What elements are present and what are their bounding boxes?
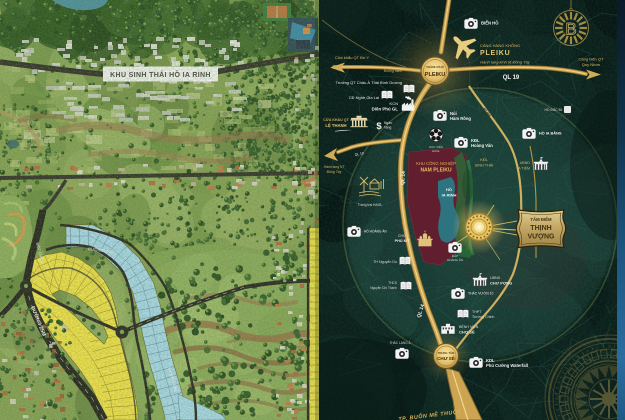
svg-text:KCN: KCN	[390, 101, 399, 106]
svg-text:Quy Nhơn: Quy Nhơn	[582, 62, 600, 67]
svg-text:CHƯ PỢNG: CHƯ PỢNG	[490, 281, 512, 286]
svg-text:SINH THÁI: SINH THÁI	[475, 164, 494, 168]
svg-text:TRUNG TÂM: TRUNG TÂM	[438, 350, 455, 355]
svg-text:UBND: UBND	[490, 276, 501, 280]
svg-text:CHỢ: CHỢ	[398, 234, 406, 238]
svg-text:HỒ HOÀNG ÂN: HỒ HOÀNG ÂN	[364, 229, 387, 234]
svg-text:CHỢ SÊ: CHỢ SÊ	[459, 330, 475, 335]
svg-text:QL 14: QL 14	[400, 171, 407, 185]
svg-text:Trường Chinh: Trường Chinh	[472, 315, 494, 319]
svg-text:hàng: hàng	[384, 126, 392, 130]
svg-text:IA TIÊM: IA TIÊM	[517, 166, 530, 171]
svg-text:HỒ: HỒ	[446, 187, 452, 192]
svg-text:IA RINH: IA RINH	[442, 193, 457, 198]
svg-text:THÀNH PHỐ: THÀNH PHỐ	[426, 64, 444, 69]
svg-text:VƯỢNG: VƯỢNG	[528, 234, 556, 241]
svg-text:BIỂN HỒ: BIỂN HỒ	[481, 21, 499, 26]
svg-text:LỆ THANH: LỆ THANH	[325, 123, 346, 128]
svg-text:TÂM ĐIỂM: TÂM ĐIỂM	[530, 217, 552, 222]
svg-text:CHƯ SÊ: CHƯ SÊ	[437, 354, 455, 361]
svg-text:THPT: THPT	[472, 310, 482, 314]
svg-text:Hoàng Vân: Hoàng Vân	[471, 143, 493, 148]
svg-text:UBND: UBND	[520, 161, 531, 165]
svg-text:PLEIKU: PLEIKU	[480, 50, 510, 57]
svg-text:B: B	[565, 20, 576, 39]
svg-text:QL 19: QL 19	[503, 75, 520, 81]
svg-text:Hàm Rồng: Hàm Rồng	[450, 116, 471, 121]
svg-text:Diên Phú GL: Diên Phú GL	[372, 107, 399, 112]
svg-text:CĐ Nghề Gia Lai: CĐ Nghề Gia Lai	[349, 95, 379, 100]
svg-text:THÁC VƯỜN 10: THÁC VƯỜN 10	[468, 291, 494, 296]
svg-text:NAM PLEIKU: NAM PLEIKU	[420, 168, 452, 174]
svg-text:THÁC LẠNG Á: THÁC LẠNG Á	[389, 341, 411, 345]
svg-text:Cảng biển QT: Cảng biển QT	[579, 57, 604, 62]
svg-text:Ngân: Ngân	[384, 121, 392, 125]
svg-text:CỬA KHẨU QT: CỬA KHẨU QT	[323, 117, 349, 122]
svg-text:Hành lang KT: Hành lang KT	[324, 165, 346, 169]
svg-text:HỒ IA BĂNG: HỒ IA BĂNG	[539, 131, 562, 136]
svg-text:CẢNG HÀNG KHÔNG: CẢNG HÀNG KHÔNG	[480, 43, 520, 48]
svg-text:THỊNH: THỊNH	[530, 225, 551, 232]
svg-text:HAGL: HAGL	[432, 149, 440, 153]
svg-text:$: $	[376, 121, 382, 132]
svg-text:PLEIKU: PLEIKU	[425, 72, 446, 78]
svg-text:HOÀNG ÂN: HOÀNG ÂN	[447, 257, 463, 262]
svg-text:PHÚ MỸ: PHÚ MỸ	[395, 238, 410, 243]
svg-text:Trường QT Châu Á Thái Bình Dươ: Trường QT Châu Á Thái Bình Dương	[336, 80, 402, 85]
svg-text:HỒ ĐẮC ĐI: HỒ ĐẮC ĐI	[544, 107, 562, 112]
svg-text:Phú Cường Waterfall: Phú Cường Waterfall	[486, 363, 528, 368]
svg-text:KHU CÔNG NGHIỆP: KHU CÔNG NGHIỆP	[416, 161, 456, 166]
svg-text:THCS: THCS	[388, 281, 397, 285]
svg-text:Trang trại HAGL: Trang trại HAGL	[358, 203, 383, 207]
svg-text:Cửa khẩu QT Bờ Y: Cửa khẩu QT Bờ Y	[335, 55, 370, 60]
svg-text:Đông Tây: Đông Tây	[327, 170, 342, 174]
svg-text:TH Nguyễn Du: TH Nguyễn Du	[373, 259, 397, 264]
svg-text:Hành lang kinh tế Đông Tây: Hành lang kinh tế Đông Tây	[480, 60, 531, 65]
svg-text:Nguyễn Chí Thanh: Nguyễn Chí Thanh	[370, 285, 397, 290]
svg-text:KĐL: KĐL	[480, 158, 487, 162]
svg-text:BỆNH VIỆN: BỆNH VIỆN	[459, 324, 479, 329]
